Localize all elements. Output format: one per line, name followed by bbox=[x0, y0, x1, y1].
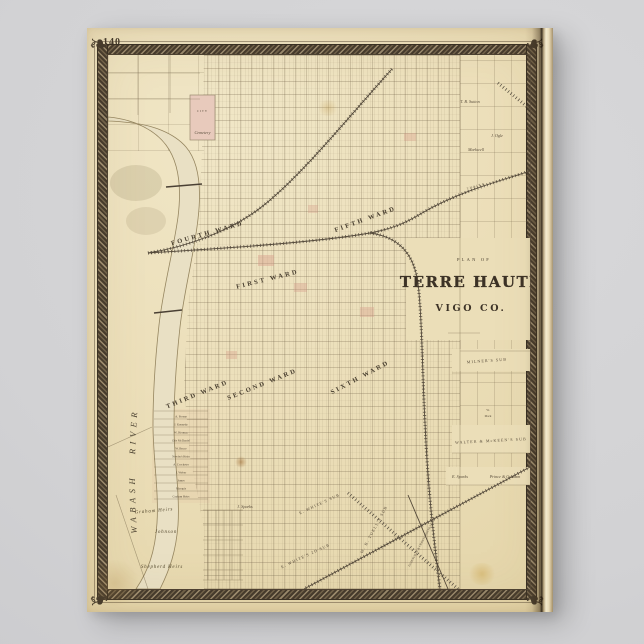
landowner-label: James bbox=[177, 479, 185, 483]
map-area: A. Fresne J. Kennedy W. Herman Otis McDa… bbox=[107, 54, 531, 590]
landowner-label: J. Kennedy bbox=[174, 423, 188, 427]
owner-label-shepherd: Shepherd Heirs bbox=[141, 565, 183, 570]
landowner-label: Marquis bbox=[176, 487, 187, 491]
sub-label-tuells: W. B. TUELL'S SUB bbox=[359, 505, 388, 554]
owner-label-markwell: Markwell bbox=[467, 147, 485, 152]
ward-label-second: SECOND WARD bbox=[226, 367, 298, 402]
cemetery-label-top: CITY bbox=[197, 109, 208, 113]
cemetery-label-bottom: Cemetery bbox=[194, 130, 210, 135]
southwest-small-grid bbox=[203, 510, 243, 580]
landowner-label: Newby's Heirs bbox=[172, 455, 190, 459]
landowner-label: W. Herman bbox=[174, 431, 188, 435]
landowner-label: Otis McDaniel bbox=[172, 439, 190, 443]
photo-background: 140 ❧ ❧ ❧ ❧ bbox=[0, 0, 644, 644]
owner-label-sutton: T. B. Sutton bbox=[460, 99, 479, 104]
landowner-label: W. Bruce bbox=[175, 447, 187, 451]
ward-label-first: FIRST WARD bbox=[236, 268, 300, 290]
sub-label-e-whites-2d: E. WHITE'S 2D SUB bbox=[280, 542, 331, 569]
owner-label-prince-graham: Prince & Graham bbox=[489, 474, 520, 479]
owner-label-e-sparks: E. Sparks bbox=[451, 474, 468, 479]
title-kicker: PLAN OF bbox=[457, 257, 491, 262]
landowner-label: J. Weber bbox=[176, 471, 186, 475]
border-band-bottom bbox=[97, 589, 537, 600]
owner-label-mack: Mack bbox=[485, 414, 492, 418]
atlas-page: 140 ❧ ❧ ❧ ❧ bbox=[87, 28, 553, 612]
owner-label-ogle: J. Ogle bbox=[491, 133, 503, 138]
owner-label-w: W. bbox=[486, 408, 490, 412]
title-sub: VIGO CO. bbox=[435, 303, 507, 314]
owner-label-j-sparks: J. Sparks bbox=[237, 504, 253, 509]
landowner-label: A. Crocketer bbox=[173, 463, 189, 467]
map-overlay: A. Fresne J. Kennedy W. Herman Otis McDa… bbox=[108, 55, 530, 589]
title-main: TERRE HAUTE bbox=[400, 273, 530, 291]
rail-label-northeast: T. H. & I. R. R. bbox=[466, 181, 485, 190]
sub-label-e-whites: E. WHITE'S SUB bbox=[298, 492, 340, 515]
ward-label-sixth: SIXTH WARD bbox=[330, 359, 391, 396]
ward-label-fifth: FIFTH WARD bbox=[334, 205, 398, 234]
owner-label-johnson: Johnson bbox=[155, 530, 177, 535]
landowner-label: A. Fresne bbox=[175, 415, 187, 419]
landowner-label: Graham Heirs bbox=[173, 495, 191, 499]
